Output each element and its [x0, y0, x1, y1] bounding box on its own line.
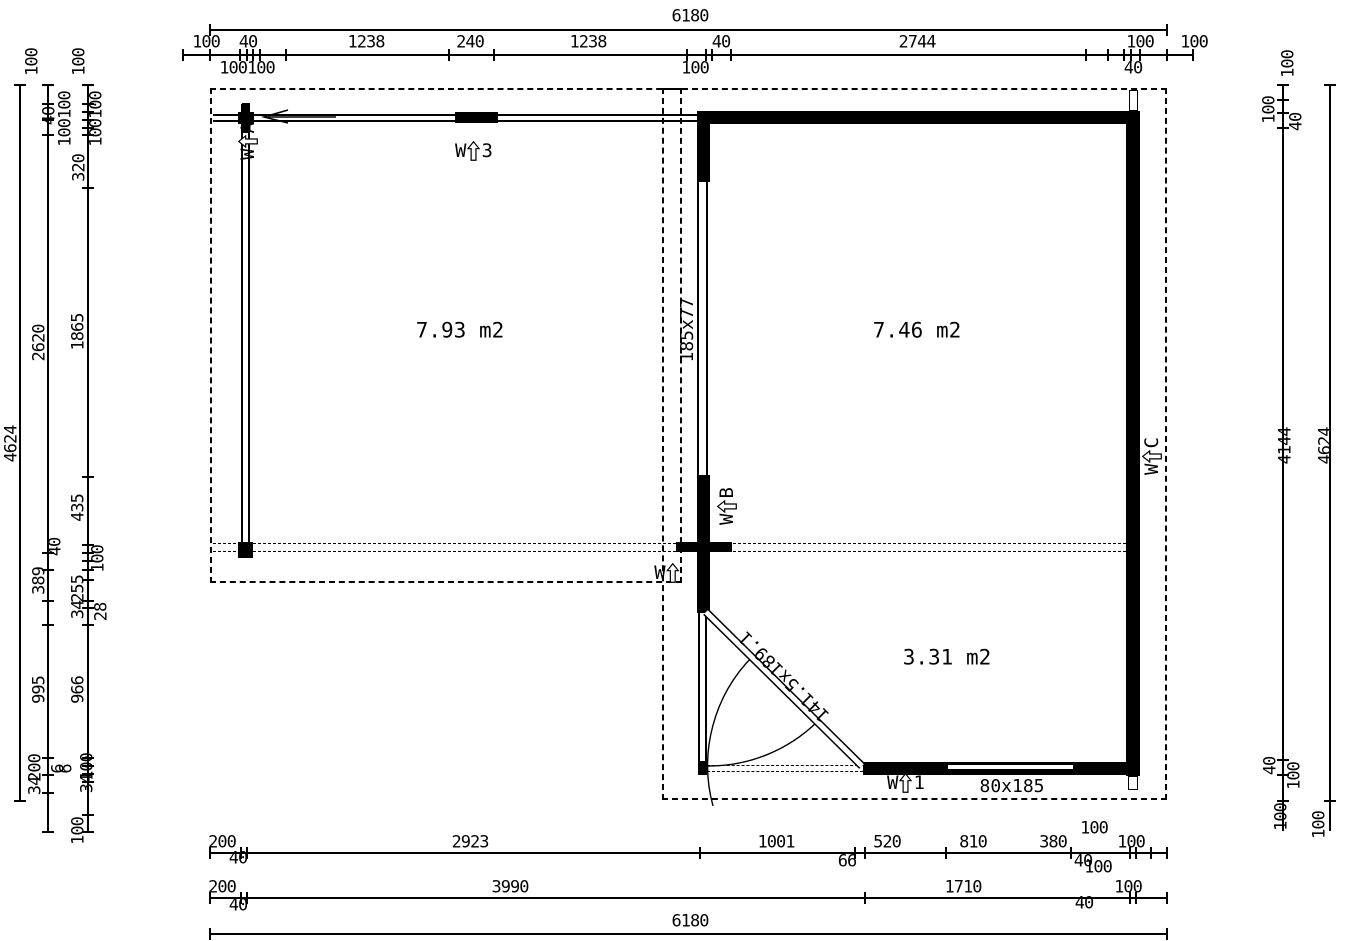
dimension-label: 100 [1114, 880, 1142, 897]
door-swing-arc [707, 722, 817, 766]
dimension-label: 2620 [32, 325, 49, 362]
dimension-label: 435 [71, 494, 88, 522]
dimension-label: 100100 [219, 61, 274, 78]
opening-label-prefix: W [654, 564, 665, 583]
room-area-label: 7.46 m2 [873, 321, 962, 342]
opening-label-suffix: B [718, 487, 737, 498]
dimension-label: 100 [25, 48, 42, 76]
dimension-label: 966 [71, 676, 88, 704]
dimension-label: 4624 [1318, 428, 1335, 465]
dimension-label: 3990 [492, 880, 529, 897]
dimension-label: 1238 [348, 35, 385, 52]
dimension-label: 100 [91, 545, 108, 573]
room-area-label: 3.31 m2 [903, 648, 992, 669]
dimension-label: 255 [71, 575, 88, 603]
dimension-label: 1710 [945, 880, 982, 897]
opening-size-label: 185x77 [679, 297, 697, 362]
dimension-label: 320 [72, 154, 89, 182]
floor-plan-canvas: 7.93 m2 7.46 m2 3.31 m2 6180100401238240… [0, 0, 1353, 941]
dimension-label: 100 [1080, 821, 1108, 838]
opening-label-prefix: W [239, 149, 258, 160]
dimension-label: 240 [456, 35, 484, 52]
dimension-label: 995 [32, 676, 49, 704]
opening-label-window-a: WA [237, 122, 259, 160]
dimension-label: 100 [1084, 860, 1112, 877]
dimension-label: 1001 [758, 835, 795, 852]
opening-label-prefix: W [455, 142, 466, 161]
dimension-label: 100 [1287, 762, 1304, 790]
opening-label-suffix: C [1143, 437, 1162, 448]
dimension-label: 100 [72, 48, 89, 76]
opening-label-suffix: 1 [914, 774, 925, 793]
dimension-label: 520 [873, 835, 901, 852]
up-arrow-icon [667, 562, 680, 584]
dimension-label: 100 [1281, 50, 1298, 78]
dimension-label: 100 [1262, 96, 1279, 124]
room-area-label: 7.93 m2 [416, 321, 505, 342]
dimension-label: 100 [71, 817, 88, 845]
dimension-label: 380 [1039, 835, 1067, 852]
dimension-label: 28 [94, 603, 111, 621]
dimension-label: 100 [1117, 835, 1145, 852]
dimension-label: 40 [1075, 896, 1093, 913]
dimension-label: 389 [32, 567, 49, 595]
dimension-label: 810 [959, 835, 987, 852]
dimension-label: 6180 [672, 9, 709, 26]
dimension-label: 100 [1126, 35, 1154, 52]
opening-label-door-1: W1 [887, 772, 925, 794]
dimension-label: 34 [80, 775, 97, 793]
dimension-label: 4144 [1278, 428, 1295, 465]
dimension-label: 34 [71, 601, 88, 619]
opening-label-prefix: W [1143, 464, 1162, 475]
dimension-label: 40 [229, 898, 247, 915]
door-swing-arc [708, 656, 753, 806]
dimension-label: 100100 [89, 91, 106, 146]
dimension-label: 40 [712, 35, 730, 52]
dimension-label: 100100 [58, 91, 75, 146]
opening-label-prefix: W [718, 514, 737, 525]
dimension-label: 100 [681, 61, 709, 78]
up-arrow-icon [1141, 450, 1163, 463]
dimension-label: 1865 [71, 314, 88, 351]
dimension-label: 40 [1289, 113, 1306, 131]
dimension-label: 2923 [452, 835, 489, 852]
opening-label-window-b: WB [716, 487, 738, 525]
dimension-label: 6 [59, 764, 76, 773]
opening-label-suffix: 3 [482, 142, 493, 161]
opening-label-window-2: W [654, 562, 679, 584]
opening-size-label: 80x185 [979, 778, 1044, 796]
dimension-label: 34 [28, 777, 45, 795]
dimension-label: 4624 [4, 426, 21, 463]
dimension-label: 100 [1180, 35, 1208, 52]
dimension-label: 40 [239, 35, 257, 52]
dimension-label: 40 [48, 538, 65, 556]
up-arrow-icon [237, 135, 259, 148]
up-arrow-icon [900, 772, 913, 794]
dimension-label: 40 [1124, 61, 1142, 78]
dimension-label: 40 [229, 851, 247, 868]
dimension-label: 66 [838, 854, 856, 871]
dimension-label: 6180 [672, 914, 709, 931]
dimension-label: 200 [208, 880, 236, 897]
dimension-label: 100 [192, 35, 220, 52]
dimension-label: 40 [1263, 757, 1280, 775]
dimension-label: 2744 [899, 35, 936, 52]
opening-label-window-3: W3 [455, 140, 493, 162]
dimension-label: 100 [1312, 811, 1329, 839]
dimension-label: 1238 [570, 35, 607, 52]
opening-label-suffix: A [239, 122, 258, 133]
up-arrow-icon [468, 140, 481, 162]
up-arrow-icon [716, 500, 738, 513]
opening-label-prefix: W [887, 774, 898, 793]
dimension-label: 100 [1274, 803, 1291, 831]
opening-label-window-c: WC [1141, 437, 1163, 475]
